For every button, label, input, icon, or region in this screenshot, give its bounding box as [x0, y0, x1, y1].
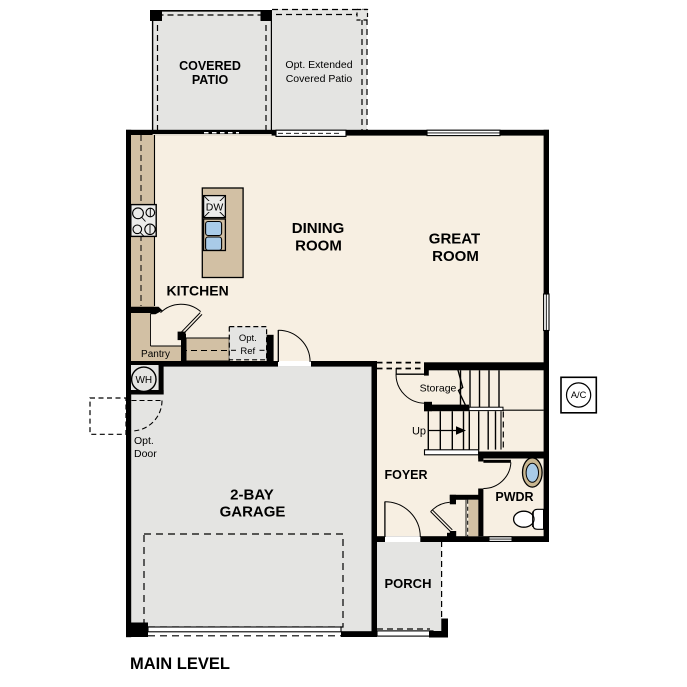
svg-text:KITCHEN: KITCHEN: [166, 283, 228, 299]
svg-text:WH: WH: [135, 375, 152, 386]
svg-text:Pantry: Pantry: [141, 349, 170, 360]
svg-text:PATIO: PATIO: [192, 73, 229, 87]
svg-text:GARAGE: GARAGE: [220, 504, 286, 521]
svg-text:Opt.: Opt.: [134, 435, 154, 447]
svg-text:MAIN LEVEL: MAIN LEVEL: [130, 655, 230, 673]
svg-text:Opt. Extended: Opt. Extended: [285, 59, 352, 71]
svg-text:ROOM: ROOM: [432, 248, 479, 265]
svg-text:A/C: A/C: [571, 390, 587, 400]
svg-text:GREAT: GREAT: [429, 231, 480, 248]
svg-text:DW: DW: [206, 202, 224, 214]
svg-text:Opt.: Opt.: [239, 333, 257, 344]
svg-text:ROOM: ROOM: [295, 238, 342, 255]
svg-text:Door: Door: [134, 448, 157, 460]
svg-text:Storage: Storage: [420, 383, 457, 395]
svg-text:PWDR: PWDR: [495, 490, 533, 504]
svg-text:Ref: Ref: [240, 346, 255, 357]
svg-text:DINING: DINING: [292, 220, 345, 237]
svg-text:COVERED: COVERED: [179, 59, 241, 73]
svg-text:PORCH: PORCH: [385, 576, 432, 591]
svg-text:2-BAY: 2-BAY: [230, 487, 274, 504]
svg-text:FOYER: FOYER: [384, 468, 427, 482]
svg-text:Covered Patio: Covered Patio: [286, 73, 353, 85]
svg-text:Up: Up: [412, 426, 426, 438]
